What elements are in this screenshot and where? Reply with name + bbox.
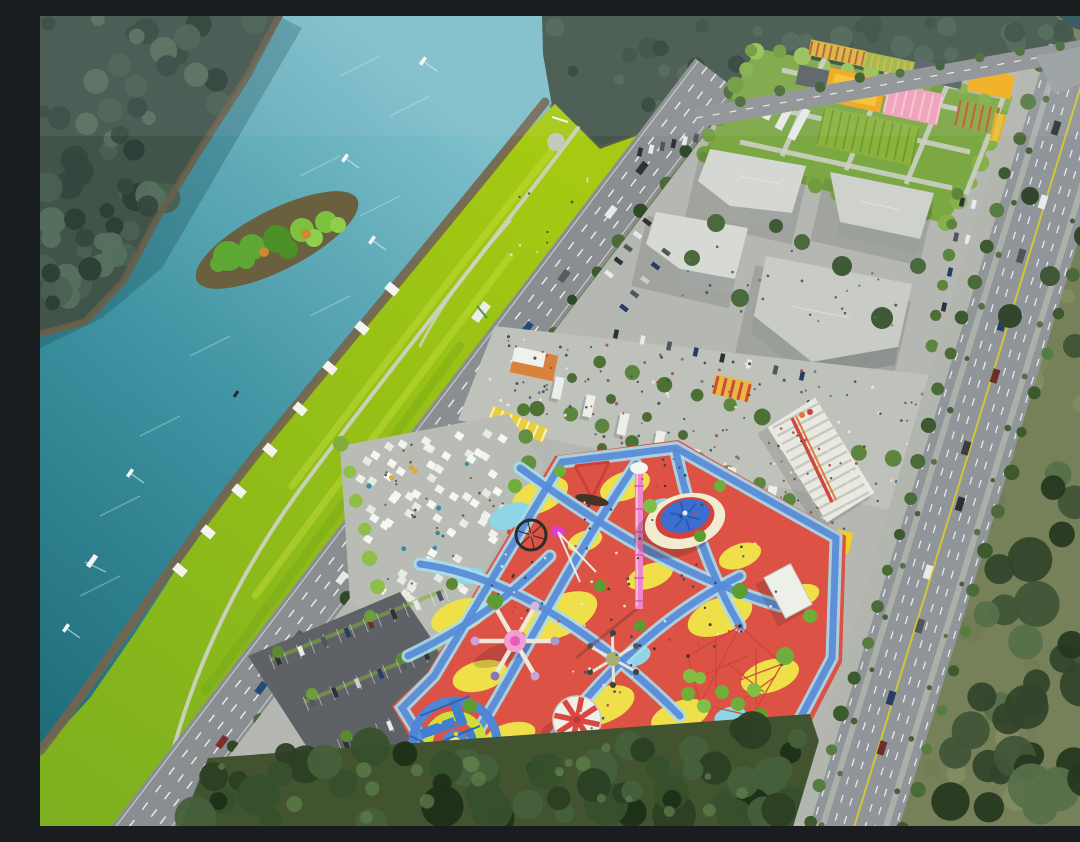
- park-visitors: [619, 691, 621, 693]
- plaza-crowds: [667, 379, 670, 382]
- carousel-finial: [574, 717, 581, 724]
- park-visitors: [579, 712, 582, 715]
- east-parking-trees: [952, 188, 964, 200]
- park-visitors: [505, 553, 507, 555]
- building-plaza-people: [801, 279, 804, 282]
- plaza-crowds: [671, 372, 674, 375]
- plaza-crowds: [656, 381, 659, 384]
- boulevard-median-shrubs-west: [995, 252, 1001, 258]
- plaza-crowds: [718, 368, 721, 371]
- park-trees: [487, 593, 503, 609]
- market-shoppers: [452, 555, 454, 557]
- plaza-crowds: [514, 389, 516, 391]
- boulevard-trees-east: [1066, 268, 1080, 282]
- market-shoppers: [414, 509, 417, 512]
- plaza-tree-row-north: [657, 377, 673, 393]
- boulevard-trees-east: [960, 626, 971, 637]
- plaza-planters: [606, 394, 616, 404]
- park-tree-row-east: [697, 699, 711, 713]
- east-parking-trees: [943, 249, 955, 261]
- park-visitors: [735, 624, 738, 627]
- park-visitors: [610, 508, 613, 511]
- plaza-crowds: [590, 346, 592, 348]
- left-forest-canopy: [64, 208, 86, 230]
- boulevard-median-shrubs-east: [1022, 373, 1028, 379]
- park-visitors: [669, 639, 671, 641]
- plaza-crowds: [546, 413, 548, 415]
- boulevard-median-shrubs-west: [947, 407, 954, 414]
- south-tree-belt: [713, 791, 734, 812]
- building-plaza-people: [841, 308, 843, 310]
- park-visitors: [709, 623, 712, 626]
- market-trees-west: [333, 436, 349, 452]
- building-plaza-people: [877, 278, 879, 280]
- plaza-crowds: [595, 433, 597, 435]
- plaza-crowds: [877, 500, 879, 502]
- park-visitors: [695, 564, 697, 566]
- boulevard-trees-west: [921, 418, 936, 433]
- plaza-crowds: [722, 429, 724, 431]
- grandstand-crowd: [800, 440, 802, 442]
- park-visitors: [557, 620, 560, 623]
- east-tree-singles: [998, 304, 1022, 328]
- building-plaza-people: [762, 298, 765, 301]
- plaza-crowds: [592, 413, 594, 415]
- park-visitors: [630, 664, 633, 667]
- park-visitors: [590, 580, 593, 583]
- plaza-crowds: [657, 402, 660, 405]
- park-visitors: [646, 523, 649, 526]
- park-visitors: [693, 512, 696, 515]
- boulevard-median-shrubs-west: [851, 718, 858, 725]
- island-tree-canopy: [237, 251, 255, 269]
- plaza-crowds: [564, 414, 567, 417]
- building-plaza-people: [709, 284, 712, 287]
- south-tree-belt: [577, 768, 611, 802]
- plaza-crowds: [569, 405, 572, 408]
- market-color-stalls: [389, 475, 394, 480]
- east-tree-clusters: [939, 737, 971, 769]
- plaza-crowds: [515, 345, 517, 347]
- plaza-crowds: [745, 363, 747, 365]
- boulevard-trees-west: [833, 706, 849, 722]
- small-spinner-gondolas: [633, 669, 639, 675]
- park-visitors: [713, 645, 716, 648]
- plaza-tree-row-north: [625, 365, 640, 380]
- boulevard-trees-east: [948, 665, 959, 676]
- grandstand-flags: [807, 409, 813, 415]
- boulevard-trees-east: [1004, 465, 1020, 481]
- market-shoppers: [462, 514, 465, 517]
- plaza-tree-row-south: [529, 401, 544, 416]
- boulevard-trees-west: [910, 454, 925, 469]
- plaza-crowds: [783, 379, 786, 382]
- plaza-planters: [567, 373, 577, 383]
- grandstand-crowd: [830, 477, 832, 479]
- lawn-people: [571, 200, 574, 203]
- plaza-crowds: [529, 396, 532, 399]
- plaza-crowds: [510, 360, 513, 363]
- market-shoppers: [410, 444, 412, 446]
- market-trees-east: [518, 429, 532, 443]
- east-tree-clusters: [1008, 624, 1043, 659]
- south-tree-belt: [433, 774, 452, 793]
- plaza-crowds: [652, 381, 655, 384]
- plaza-crowds: [728, 391, 730, 393]
- boulevard-trees-west: [968, 275, 982, 289]
- market-shoppers: [395, 480, 397, 482]
- market-trees-west: [358, 523, 371, 536]
- plaza-crowds: [620, 437, 623, 440]
- building-plaza-people: [874, 316, 876, 318]
- market-shoppers: [489, 499, 491, 501]
- park-visitors: [662, 458, 665, 461]
- building-plaza-people: [844, 312, 847, 315]
- boulevard-trees-west: [862, 637, 874, 649]
- plaza-crowds: [847, 430, 850, 433]
- plaza-crowds: [800, 391, 803, 394]
- park-visitors: [664, 485, 666, 487]
- small-spinner-hub: [606, 652, 620, 666]
- big-top-finial: [683, 511, 688, 516]
- plaza-planters: [678, 430, 688, 440]
- plaza-crowds: [546, 355, 548, 357]
- plaza-crowds: [890, 479, 892, 481]
- east-tree-clusters: [1017, 685, 1048, 716]
- plaza-crowds: [854, 380, 857, 383]
- boulevard-median-shrubs-east: [1004, 425, 1011, 432]
- east-tree-clusters: [1023, 789, 1058, 824]
- park-visitors: [631, 676, 633, 678]
- atmospheric-haze: [40, 16, 1080, 136]
- grandstand-crowd: [841, 467, 844, 470]
- parking-trees: [306, 688, 318, 700]
- south-tree-belt-highlights: [704, 773, 711, 780]
- park-visitors: [610, 619, 612, 621]
- plaza-crowds: [542, 356, 544, 358]
- grandstand-crowd: [828, 464, 831, 467]
- boulevard-trees-east: [1041, 347, 1053, 359]
- park-visitors: [585, 647, 587, 649]
- plaza-crowds: [748, 394, 750, 396]
- plaza-crowds: [489, 378, 492, 381]
- boulevard-trees-west: [998, 167, 1010, 179]
- plaza-crowds: [533, 357, 536, 360]
- south-tree-belt: [663, 790, 682, 809]
- site-plan-canvas: [40, 16, 1080, 826]
- boulevard-trees-west: [826, 744, 837, 755]
- market-trees-west: [349, 494, 363, 508]
- market-trees-west: [370, 579, 385, 594]
- plaza-crowds: [622, 412, 624, 414]
- grandstand-crowd: [816, 507, 818, 509]
- boulevard-trees-west: [980, 240, 994, 254]
- market-shoppers: [411, 582, 413, 584]
- east-tree-clusters: [973, 601, 999, 627]
- boulevard-trees-east: [921, 744, 932, 755]
- plaza-crowds: [603, 435, 606, 438]
- boulevard-trees-east: [936, 705, 947, 716]
- park-trees: [803, 609, 817, 623]
- market-shoppers: [501, 502, 503, 504]
- park-visitors: [607, 588, 610, 591]
- plaza-crowds: [906, 420, 908, 422]
- spinner-ride-gondolas: [531, 602, 540, 611]
- plaza-crowds: [543, 385, 546, 388]
- park-visitors: [680, 574, 683, 577]
- building-plaza-people: [791, 250, 793, 252]
- grandstand-crowd: [846, 499, 848, 501]
- boulevard-trees-west: [848, 672, 861, 685]
- island-autumn-trees: [259, 247, 269, 257]
- park-visitors: [511, 611, 514, 614]
- south-tree-belt: [683, 760, 704, 781]
- market-shoppers: [395, 483, 397, 485]
- grandstand-crowd: [773, 462, 775, 464]
- park-trees: [776, 647, 794, 665]
- island-tree-canopy: [210, 256, 226, 272]
- small-spinner-gondolas: [633, 643, 639, 649]
- parking-trees: [446, 578, 458, 590]
- park-visitors: [584, 518, 586, 520]
- south-tree-belt: [645, 755, 669, 779]
- boulevard-median-shrubs-west: [915, 511, 921, 517]
- park-visitors: [656, 486, 658, 488]
- plaza-crowds: [607, 379, 610, 382]
- park-visitors: [583, 501, 585, 503]
- south-tree-belt-highlights: [597, 794, 606, 803]
- park-visitors: [588, 667, 591, 670]
- left-forest-canopy: [106, 217, 124, 235]
- plaza-crowds: [712, 385, 714, 387]
- park-visitors: [572, 670, 574, 672]
- east-tree-clusters: [974, 792, 1004, 822]
- grandstand-crowd: [777, 445, 780, 448]
- market-shoppers: [411, 514, 413, 516]
- park-visitors: [589, 527, 591, 529]
- park-trees: [732, 583, 748, 599]
- plaza-crowds: [683, 418, 685, 420]
- boulevard-trees-east: [910, 782, 925, 797]
- plaza-crowds: [615, 402, 618, 405]
- building-plaza-people: [767, 275, 770, 278]
- park-visitors: [491, 584, 493, 586]
- boulevard-median-shrubs-west: [837, 771, 843, 777]
- plaza-crowds: [538, 391, 541, 394]
- boulevard-trees-east: [1016, 427, 1026, 437]
- plaza-crowds: [516, 382, 519, 385]
- park-visitors: [591, 727, 593, 729]
- east-grass-light-patches-2: [925, 761, 940, 776]
- park-visitors: [714, 582, 717, 585]
- market-trees-west: [362, 551, 377, 566]
- park-visitors: [651, 519, 653, 521]
- park-visitors: [664, 464, 666, 466]
- drop-tower-top: [630, 462, 648, 474]
- plaza-crowds: [830, 395, 832, 397]
- park-visitors: [513, 591, 515, 593]
- park-visitors: [574, 545, 576, 547]
- park-visitors: [586, 547, 588, 549]
- east-tree-clusters: [1007, 537, 1052, 582]
- market-color-stalls: [408, 465, 413, 470]
- park-visitors: [673, 458, 675, 460]
- plaza-tree-row-north: [723, 398, 736, 411]
- market-shoppers: [470, 477, 472, 479]
- spinner-ride-gondolas: [551, 637, 560, 646]
- boulevard-trees-east: [966, 584, 979, 597]
- market-color-stalls: [366, 483, 371, 488]
- building-plaza-people: [809, 313, 812, 316]
- market-shoppers: [409, 461, 412, 464]
- boulevard-median-shrubs-west: [1011, 200, 1017, 206]
- plaza-crowds: [906, 443, 908, 445]
- park-visitors: [531, 561, 533, 563]
- park-visitors: [544, 557, 547, 560]
- market-color-stalls: [435, 531, 439, 535]
- plaza-crowds: [724, 463, 727, 466]
- plaza-crowds: [585, 406, 588, 409]
- park-visitors: [513, 606, 516, 609]
- building-shrubs: [731, 289, 749, 307]
- park-trees: [694, 530, 706, 542]
- parking-trees: [364, 610, 376, 622]
- plaza-crowds: [715, 434, 718, 437]
- south-tree-belt: [788, 729, 808, 749]
- playground-dots: [454, 732, 458, 736]
- park-visitors: [615, 552, 618, 555]
- left-forest-canopy: [117, 178, 134, 195]
- spinner-ride-gondolas: [531, 672, 540, 681]
- park-visitors: [697, 643, 700, 646]
- park-trees: [463, 699, 477, 713]
- plaza-tree-row-north: [885, 450, 902, 467]
- east-tree-clusters: [967, 682, 996, 711]
- park-visitors: [584, 671, 587, 674]
- park-visitors: [717, 632, 719, 634]
- plaza-crowds: [539, 398, 542, 401]
- plaza-crowds: [758, 383, 760, 385]
- park-visitors: [524, 577, 526, 579]
- parking-trees: [340, 730, 352, 742]
- grandstand-crowd: [770, 462, 772, 464]
- lawn-people: [536, 251, 538, 253]
- plaza-crowds: [805, 389, 807, 391]
- park-visitors: [501, 565, 504, 568]
- park-visitors: [637, 557, 639, 559]
- south-tree-belt-highlights: [471, 772, 486, 787]
- park-visitors: [700, 503, 703, 506]
- plaza-crowds: [818, 386, 820, 388]
- grandstand-crowd: [796, 434, 798, 436]
- plaza-crowds: [507, 404, 510, 407]
- grandstand-crowd: [845, 505, 848, 508]
- south-tree-belt-highlights: [360, 811, 372, 823]
- boulevard-median-shrubs-west: [882, 614, 888, 620]
- market-color-stalls: [433, 546, 437, 550]
- south-tree-belt-highlights: [625, 796, 632, 803]
- boulevard-median-shrubs-west: [931, 459, 937, 465]
- spinner-ride-gondolas: [491, 672, 500, 681]
- left-forest-canopy: [41, 228, 61, 248]
- plaza-crowds: [666, 392, 669, 395]
- building-shrubs: [769, 219, 783, 233]
- park-visitors: [587, 504, 590, 507]
- south-tree-belt-highlights: [218, 763, 225, 770]
- grandstand-crowd: [839, 462, 841, 464]
- east-tree-clusters: [1041, 475, 1066, 500]
- park-visitors: [638, 537, 641, 540]
- plaza-crowds: [567, 349, 569, 351]
- east-tree-clusters: [1014, 581, 1060, 627]
- building-plaza-people: [846, 290, 848, 292]
- grandstand-crowd: [780, 496, 782, 498]
- grandstand-crowd: [807, 473, 809, 475]
- east-parking-trees: [937, 280, 948, 291]
- spinner-ride-gondolas: [471, 637, 480, 646]
- plaza-crowds: [863, 445, 866, 448]
- building-plaza-people: [894, 304, 897, 307]
- plaza-crowds: [915, 403, 917, 405]
- market-shoppers: [425, 497, 427, 499]
- rope-course-poles: [738, 624, 742, 628]
- plaza-crowds: [659, 354, 662, 357]
- park-visitors: [626, 577, 629, 580]
- island-autumn-trees: [301, 229, 311, 239]
- plaza-crowds: [605, 344, 608, 347]
- east-tree-singles: [1040, 266, 1060, 286]
- plaza-crowds: [710, 449, 713, 452]
- building-plaza-people: [891, 324, 893, 326]
- boulevard-median-shrubs-west: [978, 303, 985, 310]
- market-color-stalls: [436, 506, 441, 511]
- park-trees: [714, 480, 726, 492]
- market-shoppers: [384, 504, 386, 506]
- market-color-stalls: [401, 546, 406, 551]
- boulevard-median-shrubs-east: [894, 788, 900, 794]
- island-tree-canopy: [278, 239, 298, 259]
- boulevard-trees-west: [955, 311, 969, 325]
- plaza-crowds: [546, 384, 548, 386]
- plaza-crowds: [704, 362, 707, 365]
- grandstand-crowd: [811, 440, 813, 442]
- plaza-crowds: [522, 381, 524, 383]
- building-plaza-people: [835, 296, 837, 298]
- park-visitors: [511, 575, 514, 578]
- south-tree-belt: [733, 711, 771, 749]
- grandstand-crowd: [855, 462, 858, 465]
- park-visitors: [606, 704, 609, 707]
- plaza-crowds: [641, 390, 643, 392]
- boulevard-median-shrubs-east: [959, 582, 964, 587]
- aerial-masterplan-rendering: Aerial bird's-eye architectural renderin…: [40, 16, 1080, 826]
- spinner-ride-hub-core: [510, 636, 520, 646]
- small-spinner-gondolas: [610, 682, 616, 688]
- left-forest-canopy: [102, 242, 127, 267]
- plaza-crowds: [667, 431, 669, 433]
- boulevard-trees-west: [894, 529, 905, 540]
- park-visitors: [684, 474, 687, 477]
- grandstand-crowd: [790, 471, 792, 473]
- park-visitors: [641, 478, 643, 480]
- plaza-crowds: [542, 390, 545, 393]
- left-forest-canopy: [42, 264, 61, 283]
- park-visitors: [630, 635, 633, 638]
- boulevard-median-shrubs-east: [944, 634, 948, 638]
- plaza-crowds: [566, 367, 568, 369]
- building-plaza-people: [681, 294, 683, 296]
- building-plaza-people: [716, 245, 719, 248]
